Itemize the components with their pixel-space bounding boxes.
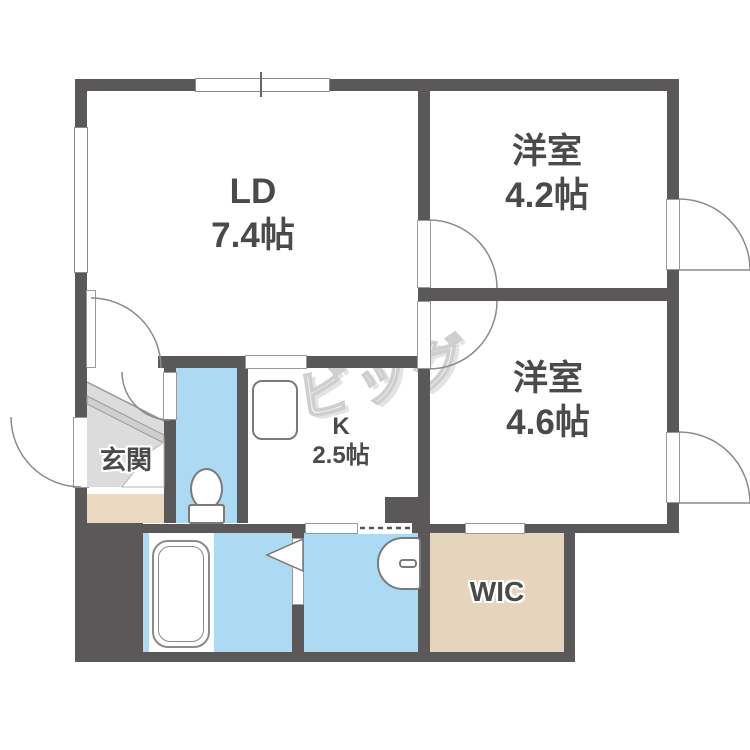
door-arc-entrance (11, 417, 81, 487)
toilet-door-opening (163, 372, 177, 420)
room-name: 玄関 (100, 440, 152, 477)
floor-plan: ビッグ (0, 0, 750, 750)
ld-door-leaf (86, 290, 96, 368)
wall-segment (564, 533, 575, 662)
west42-door-opening (417, 220, 431, 288)
west46-exterior-door (666, 432, 680, 503)
entrance-step (87, 494, 164, 523)
room-size: 7.4帖 (211, 214, 295, 258)
window-top (195, 78, 330, 92)
entrance-door-leaf (73, 417, 89, 488)
bathtub (152, 540, 210, 648)
kitchen-washroom-opening (305, 523, 358, 534)
ld-kitchen-opening (245, 355, 307, 369)
ld-door-gap (87, 356, 158, 368)
room-label-wic: WIC (470, 576, 524, 608)
west46-door-opening (417, 301, 431, 369)
bathtub-inner (158, 546, 204, 642)
room-name: 洋室 (506, 357, 590, 401)
washroom-curtain-opening (358, 523, 412, 534)
bath-folding-door-leaf (292, 538, 304, 605)
room-name: LD (211, 170, 295, 214)
room-label-ld: LD 7.4帖 (211, 170, 295, 258)
wall-segment (75, 523, 143, 662)
room-size: 2.5帖 (312, 442, 369, 471)
wall-segment (75, 79, 679, 91)
kitchen-sink (252, 380, 298, 440)
room-size: 4.6帖 (506, 401, 590, 445)
room-size: 4.2帖 (505, 174, 589, 218)
window-left (74, 127, 88, 273)
wall-segment (237, 368, 248, 523)
room-name: WIC (470, 576, 524, 608)
room-label-kitchen: K 2.5帖 (312, 413, 369, 471)
toilet-tank (188, 504, 225, 524)
room-label-west46: 洋室 4.6帖 (506, 357, 590, 445)
wall-segment (75, 652, 575, 662)
wic-opening (465, 523, 525, 534)
wall-segment (385, 497, 430, 524)
room-name: K (312, 413, 369, 442)
wall-segment (418, 288, 679, 301)
room-label-west42: 洋室 4.2帖 (505, 130, 589, 218)
door-arc-west46-exterior (679, 432, 750, 503)
room-label-entrance: 玄関 (100, 440, 152, 477)
room-name: 洋室 (505, 130, 589, 174)
staircase-rail (87, 396, 164, 443)
west42-exterior-door (666, 199, 680, 270)
washbasin-handle (399, 559, 417, 568)
door-arc-west42-exterior (679, 199, 750, 270)
staircase-edge (87, 382, 164, 421)
door-arc-west42 (429, 220, 497, 288)
